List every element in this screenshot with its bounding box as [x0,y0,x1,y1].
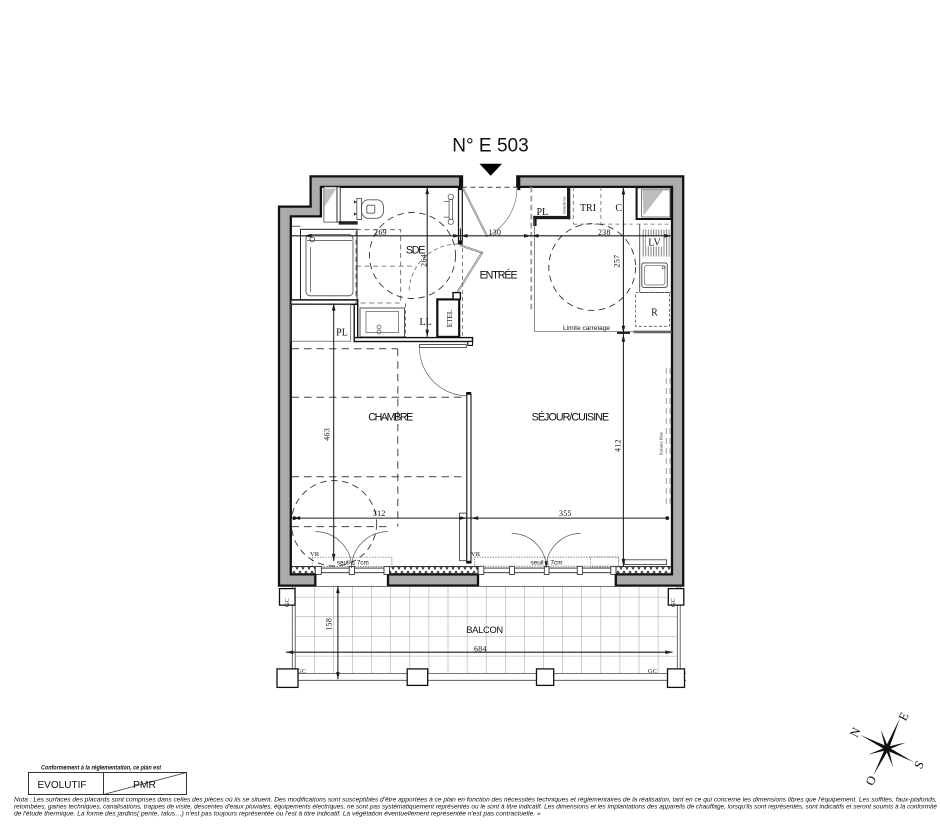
svg-text:GC: GC [297,668,306,675]
svg-text:seuil ≤ 7cm: seuil ≤ 7cm [337,560,369,567]
svg-text:Limite carrelage: Limite carrelage [563,325,610,332]
svg-text:nourrices: nourrices [562,196,567,213]
svg-text:EVOLUTIF: EVOLUTIF [38,779,87,791]
svg-text:TRI: TRI [580,203,596,214]
svg-text:Nota : Les surfaces des placar: Nota : Les surfaces des placards sont co… [14,797,937,804]
svg-text:238: 238 [598,228,611,237]
svg-text:CHAMBRE: CHAMBRE [368,411,413,423]
svg-text:LL: LL [420,317,432,328]
svg-text:158: 158 [325,618,334,631]
svg-text:ETEL: ETEL [446,310,454,328]
svg-text:GC: GC [670,598,677,607]
svg-text:PL: PL [336,328,348,339]
svg-text:463: 463 [322,428,331,441]
svg-text:SÉJOUR/CUISINE: SÉJOUR/CUISINE [532,410,610,423]
svg-text:retombées, gaines techniques,: retombées, gaines techniques, canalisati… [14,804,937,811]
svg-text:SDE: SDE [406,245,426,257]
svg-text:Conformément à la réglementati: Conformément à la réglementation, ce pla… [41,765,162,772]
svg-text:269: 269 [374,228,387,237]
svg-text:C: C [615,203,622,214]
svg-text:412: 412 [614,439,623,452]
svg-text:355: 355 [559,509,572,518]
svg-text:ENTRÉE: ENTRÉE [480,268,518,281]
svg-text:seuil ≤ 7cm: seuil ≤ 7cm [531,560,563,567]
svg-text:GC: GC [284,598,291,607]
svg-text:de l'étude thermique. La forme: de l'étude thermique. La forme des jardi… [14,811,541,818]
svg-text:BALCON: BALCON [466,624,503,635]
svg-text:684: 684 [474,644,487,653]
svg-text:LV: LV [648,238,661,249]
svg-text:257: 257 [613,255,622,268]
svg-text:GC: GC [648,668,657,675]
svg-text:PMR: PMR [133,779,156,791]
svg-text:VR: VR [310,551,320,558]
svg-text:N° E 503: N° E 503 [452,135,529,157]
svg-text:VR: VR [471,551,481,558]
svg-text:linéaire libre: linéaire libre [659,432,664,455]
svg-text:R: R [651,307,658,318]
svg-text:130: 130 [488,228,501,237]
svg-text:312: 312 [373,509,386,518]
svg-text:PL: PL [537,207,549,218]
